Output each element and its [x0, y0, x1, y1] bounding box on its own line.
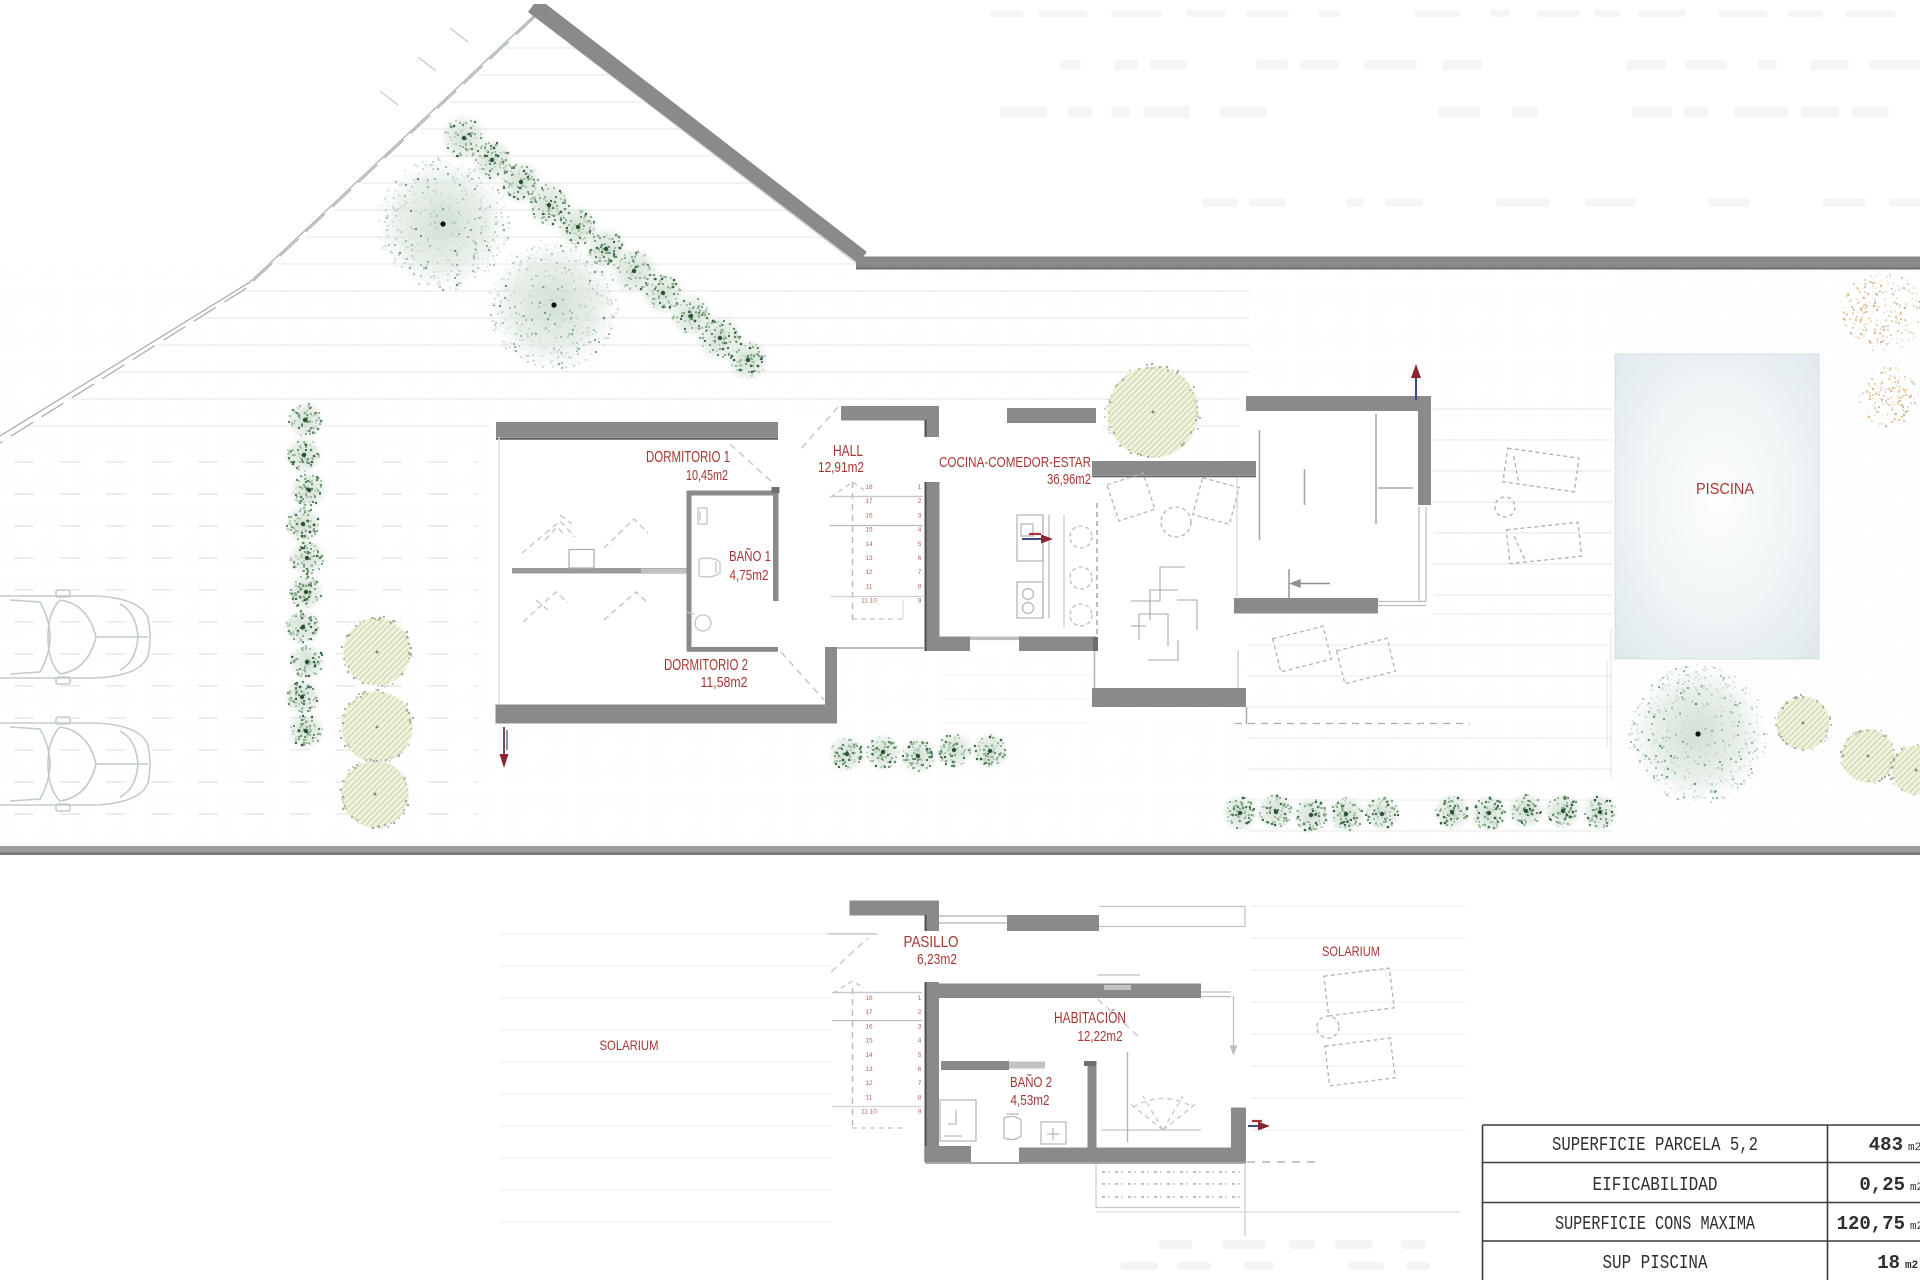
- svg-text:11: 11: [866, 583, 873, 590]
- svg-text:6: 6: [918, 1066, 922, 1073]
- svg-text:4: 4: [918, 1038, 922, 1045]
- svg-text:BAÑO 1: BAÑO 1: [729, 548, 771, 565]
- svg-text:1: 1: [918, 484, 922, 491]
- svg-text:16: 16: [865, 1023, 873, 1030]
- svg-text:7: 7: [918, 569, 922, 576]
- svg-text:1: 1: [918, 995, 922, 1002]
- svg-text:17: 17: [865, 1009, 873, 1016]
- svg-text:16: 16: [865, 512, 873, 519]
- svg-text:14: 14: [865, 541, 873, 548]
- svg-text:36,96m2: 36,96m2: [1047, 471, 1091, 488]
- svg-text:4: 4: [918, 527, 922, 534]
- svg-text:2: 2: [918, 498, 922, 505]
- svg-text:8: 8: [918, 1094, 922, 1101]
- svg-text:12,22m2: 12,22m2: [1078, 1028, 1123, 1045]
- svg-text:11,58m2: 11,58m2: [701, 674, 748, 691]
- svg-text:SOLARIUM: SOLARIUM: [600, 1037, 659, 1053]
- svg-text:14: 14: [865, 1052, 873, 1059]
- svg-text:8: 8: [918, 583, 922, 590]
- svg-text:2: 2: [918, 1009, 922, 1016]
- svg-text:7: 7: [918, 1080, 922, 1087]
- svg-text:3: 3: [918, 512, 922, 519]
- svg-text:15: 15: [865, 527, 873, 534]
- svg-text:DORMITORIO 1: DORMITORIO 1: [646, 449, 730, 466]
- svg-text:10,45m2: 10,45m2: [686, 467, 728, 484]
- svg-text:15: 15: [865, 1038, 873, 1045]
- svg-text:SOLARIUM: SOLARIUM: [1322, 943, 1380, 959]
- svg-text:12: 12: [865, 1080, 873, 1087]
- svg-text:11 10: 11 10: [861, 1109, 877, 1116]
- svg-text:12,91m2: 12,91m2: [818, 459, 864, 476]
- svg-text:COCINA-COMEDOR-ESTAR: COCINA-COMEDOR-ESTAR: [939, 454, 1091, 471]
- svg-text:6,23m2: 6,23m2: [917, 951, 957, 968]
- svg-text:5: 5: [918, 1052, 922, 1059]
- svg-text:12: 12: [865, 569, 873, 576]
- svg-text:5: 5: [918, 541, 922, 548]
- svg-text:PISCINA: PISCINA: [1696, 481, 1754, 498]
- svg-text:11 10: 11 10: [861, 598, 877, 605]
- svg-text:3: 3: [918, 1023, 922, 1030]
- svg-text:18: 18: [865, 995, 873, 1002]
- svg-text:HALL: HALL: [833, 443, 863, 460]
- svg-text:BAÑO 2: BAÑO 2: [1010, 1074, 1052, 1091]
- svg-text:4,75m2: 4,75m2: [730, 567, 769, 584]
- svg-text:9: 9: [918, 1109, 922, 1116]
- svg-text:17: 17: [865, 498, 873, 505]
- svg-text:HABITACIÓN: HABITACIÓN: [1054, 1008, 1126, 1027]
- svg-text:18: 18: [865, 484, 873, 491]
- svg-text:13: 13: [865, 555, 873, 562]
- svg-text:6: 6: [918, 555, 922, 562]
- svg-text:DORMITORIO 2: DORMITORIO 2: [664, 657, 748, 674]
- svg-text:PASILLO: PASILLO: [904, 934, 959, 951]
- svg-text:11: 11: [866, 1094, 873, 1101]
- svg-text:13: 13: [865, 1066, 873, 1073]
- svg-text:4,53m2: 4,53m2: [1011, 1092, 1050, 1109]
- svg-text:9: 9: [918, 598, 922, 605]
